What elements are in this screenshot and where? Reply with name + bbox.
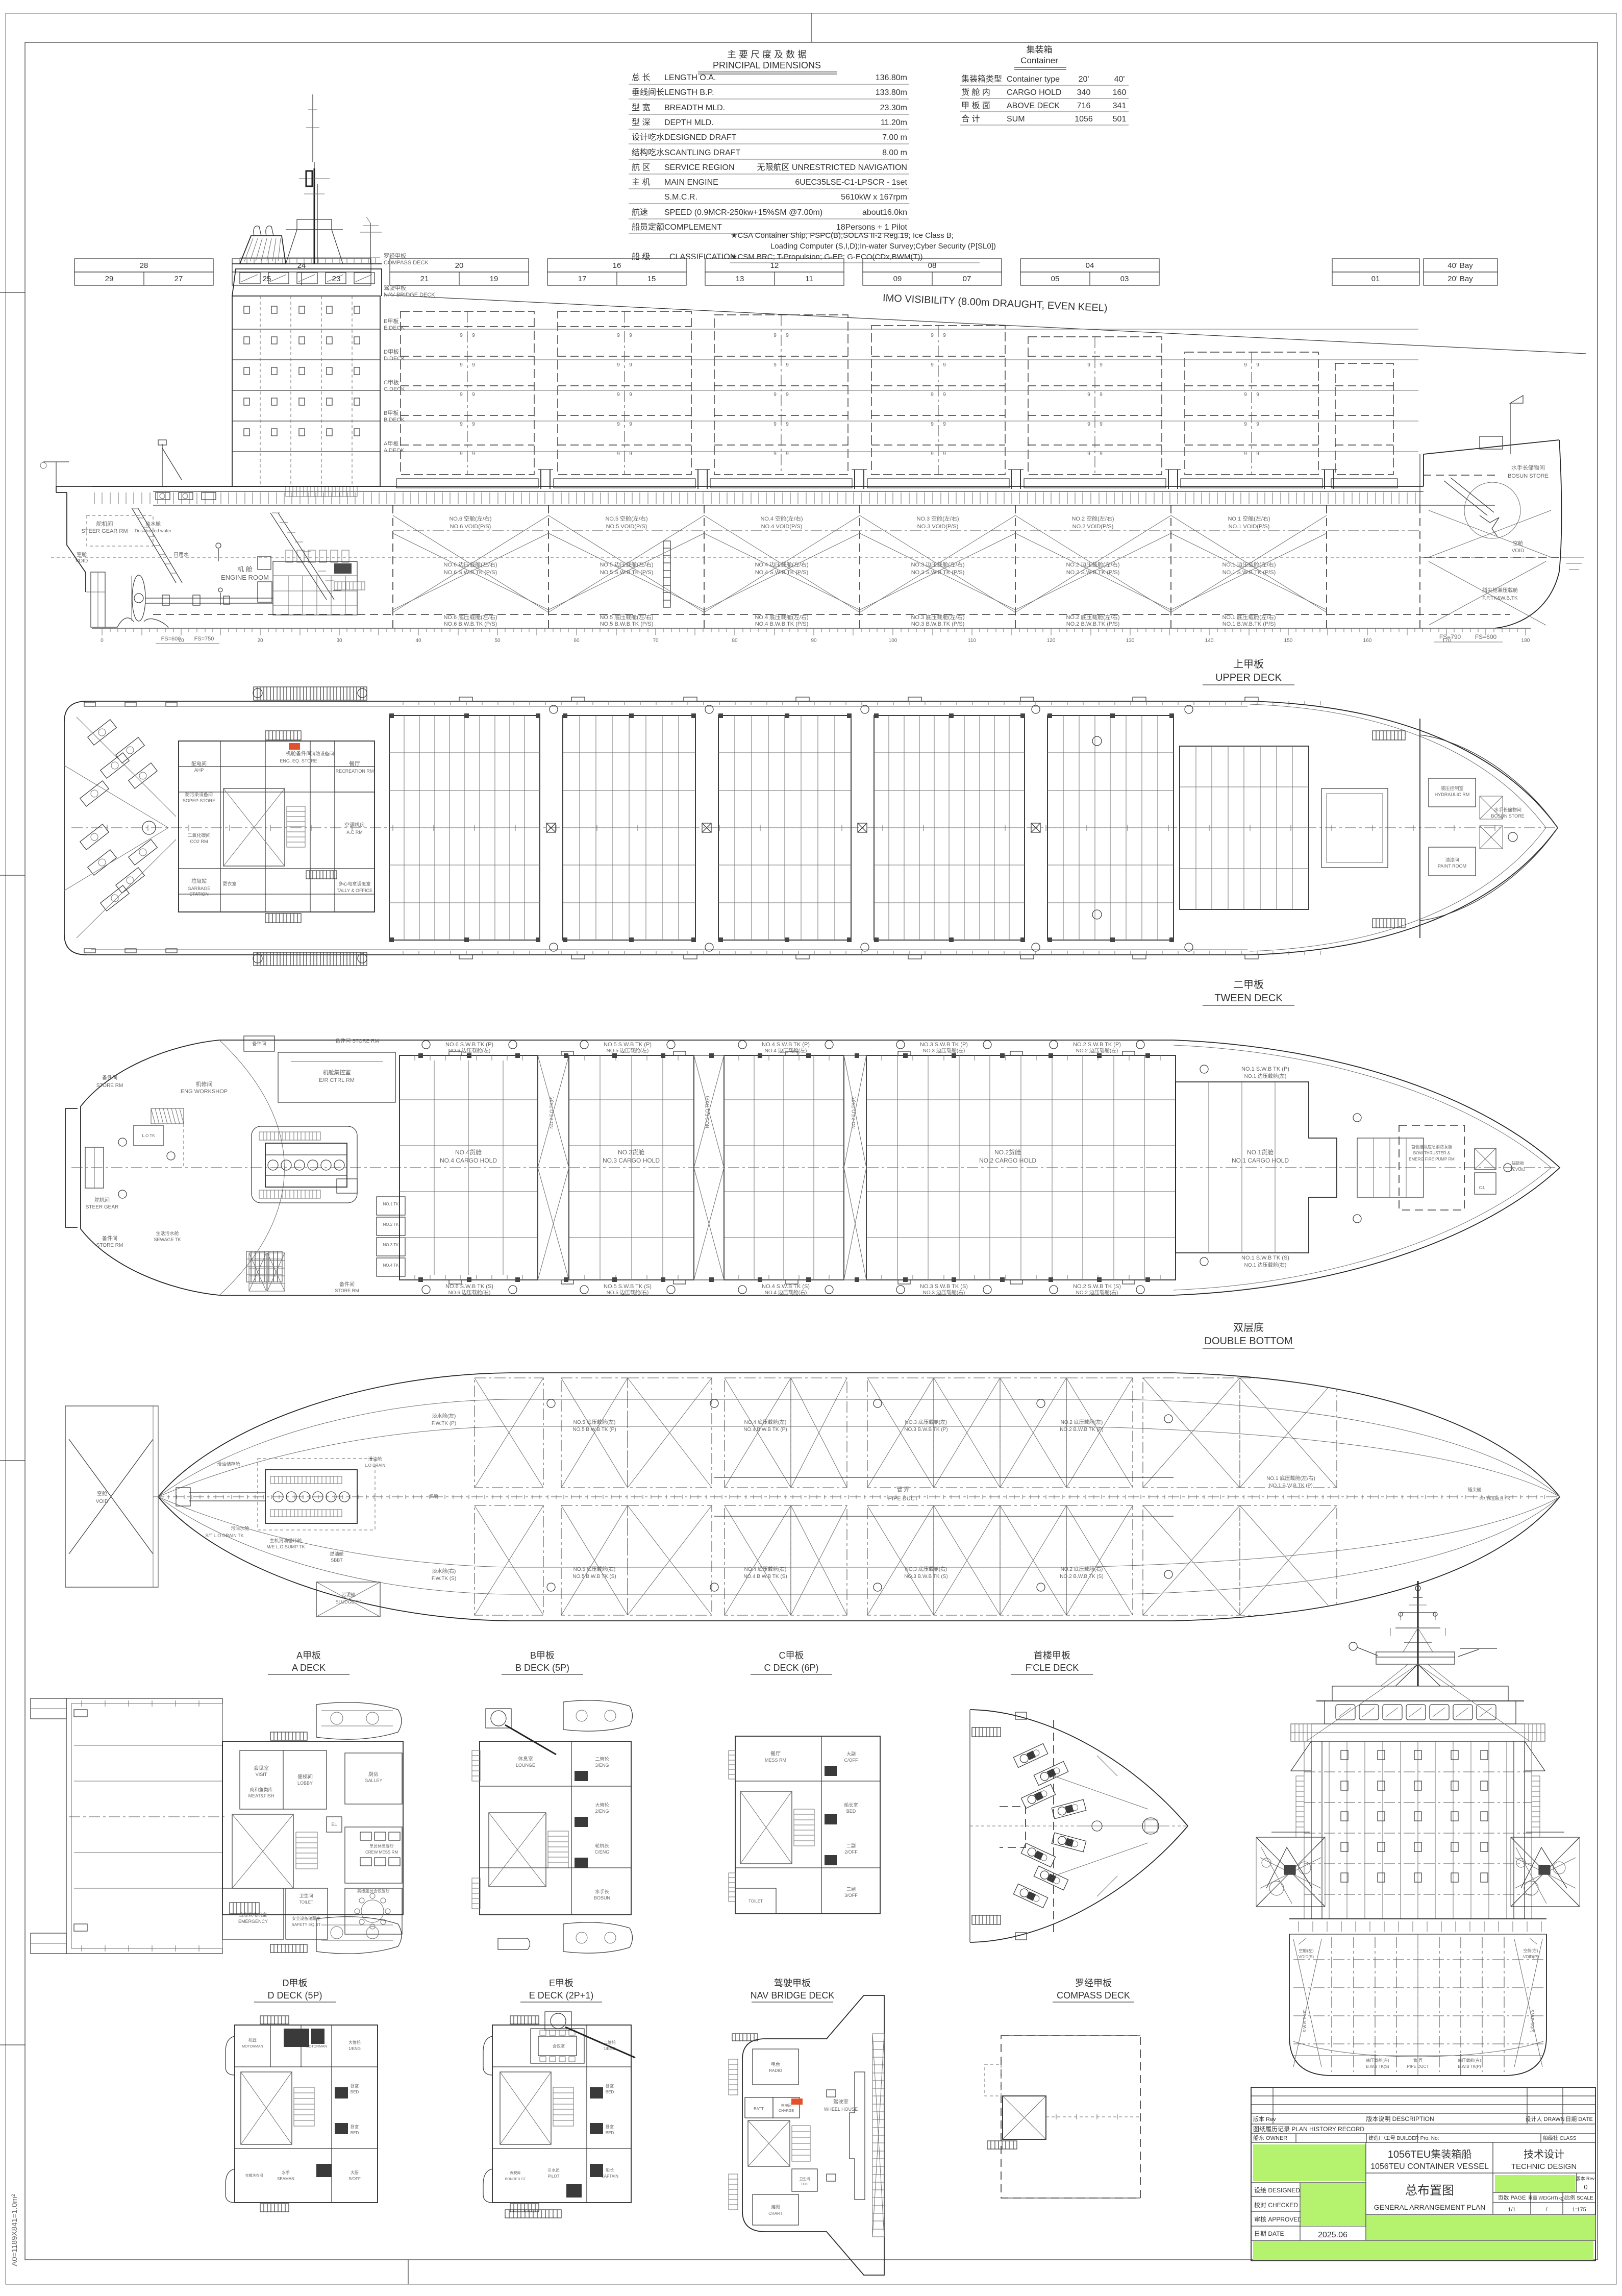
svg-text:04: 04: [1086, 261, 1094, 270]
svg-text:VOID: VOID: [76, 558, 88, 564]
svg-text:GARBAGE: GARBAGE: [188, 886, 211, 891]
svg-text:NO.3 CARGO HOLD: NO.3 CARGO HOLD: [603, 1157, 660, 1164]
svg-text:NO.4 B.W.B TK (P): NO.4 B.W.B TK (P): [743, 1427, 787, 1433]
svg-text:日用水: 日用水: [173, 552, 189, 558]
svg-text:LOBBY: LOBBY: [297, 1781, 313, 1786]
svg-text:大厨: 大厨: [351, 2170, 359, 2175]
svg-text:大管轮: 大管轮: [348, 2040, 361, 2045]
svg-text:C DECK: C DECK: [384, 386, 405, 392]
svg-text:餐厅: 餐厅: [349, 760, 360, 767]
svg-text:SEAMAN: SEAMAN: [277, 2177, 294, 2181]
svg-text:管 弄: 管 弄: [896, 1486, 909, 1493]
svg-text:PAINT ROOM: PAINT ROOM: [1438, 863, 1466, 869]
svg-text:无限航区 UNRESTRICTED NAVIGATION: 无限航区 UNRESTRICTED NAVIGATION: [757, 163, 907, 172]
svg-text:NO.6 S.W.B.TK (P/S): NO.6 S.W.B.TK (P/S): [444, 570, 497, 576]
svg-text:空舱: 空舱: [97, 1490, 107, 1497]
svg-text:首侧推及应急消防泵舱: 首侧推及应急消防泵舱: [1411, 1144, 1452, 1149]
svg-text:9: 9: [1256, 451, 1259, 457]
svg-text:甲 板 面: 甲 板 面: [961, 101, 990, 110]
svg-text:SBBT: SBBT: [331, 1558, 343, 1563]
svg-text:2/ENG: 2/ENG: [595, 1809, 609, 1814]
svg-text:NO.2 S.W.B TK (P): NO.2 S.W.B TK (P): [1073, 1042, 1121, 1048]
svg-text:TALLY & OFFICE: TALLY & OFFICE: [337, 888, 372, 893]
svg-text:UPPER DECK: UPPER DECK: [1215, 672, 1282, 683]
svg-text:图纸履历记录 PLAN HISTORY RECORD: 图纸履历记录 PLAN HISTORY RECORD: [1253, 2126, 1364, 2133]
svg-text:9: 9: [1087, 422, 1090, 427]
svg-text:110: 110: [968, 638, 976, 644]
svg-text:9: 9: [931, 451, 934, 457]
svg-text:VOID: VOID: [1512, 548, 1524, 554]
svg-text:校对 CHECKED: 校对 CHECKED: [1254, 2201, 1298, 2209]
svg-text:船长室: 船长室: [844, 1802, 858, 1808]
svg-text:9: 9: [943, 333, 946, 338]
svg-text:9: 9: [1087, 362, 1090, 368]
svg-text:SUM: SUM: [1007, 115, 1025, 124]
svg-text:120: 120: [1047, 638, 1056, 644]
svg-text:NO.2 B.W.B TK (S): NO.2 B.W.B TK (S): [1060, 1574, 1103, 1579]
svg-text:80: 80: [732, 638, 738, 644]
svg-text:EMERGENCY: EMERGENCY: [238, 1919, 268, 1924]
svg-text:艏尖舱兼压载舱: 艏尖舱兼压载舱: [1482, 587, 1518, 594]
svg-text:空舱: 空舱: [1513, 540, 1523, 547]
svg-text:会见室: 会见室: [254, 1765, 269, 1771]
svg-text:A DECK: A DECK: [384, 448, 405, 454]
svg-text:VOID(S): VOID(S): [1299, 1955, 1314, 1959]
svg-text:PIPE DUCT: PIPE DUCT: [888, 1496, 918, 1502]
svg-text:BOSUN STORE: BOSUN STORE: [1508, 473, 1549, 479]
svg-text:NO.3 B.W.B TK (P): NO.3 B.W.B TK (P): [904, 1427, 947, 1433]
svg-text:更衣室: 更衣室: [222, 881, 236, 886]
svg-text:油漆间: 油漆间: [1445, 857, 1459, 862]
svg-text:船级社 CLASS: 船级社 CLASS: [1543, 2135, 1577, 2141]
svg-text:F.W.TK (P): F.W.TK (P): [432, 1421, 456, 1426]
svg-text:NO.4 底压载舱(左): NO.4 底压载舱(左): [744, 1419, 787, 1425]
svg-text:页数 PAGE: 页数 PAGE: [1498, 2194, 1526, 2201]
svg-text:日期 DATE: 日期 DATE: [1254, 2230, 1284, 2237]
svg-text:S/T L.O DRAIN TK: S/T L.O DRAIN TK: [205, 1533, 243, 1538]
svg-text:NO.3 底压载舱(左): NO.3 底压载舱(左): [905, 1419, 947, 1425]
svg-text:9: 9: [931, 392, 934, 398]
svg-text:9: 9: [1100, 362, 1103, 368]
svg-text:9: 9: [629, 422, 632, 427]
svg-text:9: 9: [472, 362, 475, 368]
svg-text:SOPEP STORE: SOPEP STORE: [183, 798, 215, 803]
svg-text:三副: 三副: [846, 1887, 856, 1892]
svg-text:备件间: 备件间: [339, 1281, 355, 1288]
svg-text:21: 21: [420, 275, 429, 283]
svg-text:多心电意调度室: 多心电意调度室: [338, 881, 370, 886]
svg-text:MEAT&FISH: MEAT&FISH: [248, 1793, 275, 1798]
svg-text:NO.4 CARGO HOLD: NO.4 CARGO HOLD: [440, 1157, 497, 1164]
svg-text:17: 17: [578, 275, 587, 283]
svg-text:GALLEY: GALLEY: [364, 1778, 382, 1783]
svg-text:高级船员会议餐厅: 高级船员会议餐厅: [357, 1888, 390, 1893]
svg-text:VOID: VOID: [96, 1499, 108, 1504]
svg-text:船东 OWNER: 船东 OWNER: [1253, 2134, 1287, 2141]
svg-text:9: 9: [943, 392, 946, 398]
svg-text:NAV BRIDGE DECK: NAV BRIDGE DECK: [751, 1990, 835, 2001]
svg-text:底压载舱(右): 底压载舱(右): [1458, 2058, 1481, 2063]
svg-text:NO.5 底压载舱(左/右): NO.5 底压载舱(左/右): [600, 613, 653, 621]
svg-text:备件间: 备件间: [102, 1235, 117, 1242]
svg-text:40: 40: [415, 638, 421, 644]
svg-text:NO.3 S.W.B TK (S): NO.3 S.W.B TK (S): [920, 1283, 968, 1290]
svg-text:FS=600: FS=600: [161, 636, 181, 642]
svg-text:日期 DATE: 日期 DATE: [1565, 2116, 1593, 2122]
svg-text:C甲板: C甲板: [779, 1650, 804, 1661]
svg-text:E甲板: E甲板: [384, 317, 398, 325]
svg-text:船长: 船长: [606, 2167, 614, 2172]
svg-text:污泥舱: 污泥舱: [341, 1592, 355, 1597]
svg-text:9: 9: [1256, 392, 1259, 398]
svg-text:NO.1 边压载舱(左/右): NO.1 边压载舱(左/右): [1222, 561, 1276, 568]
svg-text:20: 20: [257, 638, 263, 644]
svg-text:底压载舱(左): 底压载舱(左): [1366, 2058, 1389, 2063]
svg-text:NO.5 B.W.B TK (S): NO.5 B.W.B TK (S): [572, 1574, 616, 1579]
svg-text:1:175: 1:175: [1572, 2207, 1586, 2213]
svg-text:NO.6 S.W.B TK (S): NO.6 S.W.B TK (S): [445, 1283, 493, 1290]
svg-text:电台: 电台: [771, 2061, 780, 2067]
svg-text:9: 9: [1100, 422, 1103, 427]
svg-text:C/OFF: C/OFF: [844, 1758, 858, 1763]
svg-text:VOID(P): VOID(P): [1523, 1955, 1539, 1959]
svg-text:S.W.B TK(S): S.W.B TK(S): [1303, 2009, 1307, 2033]
svg-text:型 深: 型 深: [632, 118, 650, 127]
svg-text:NO.6 边压载舱(左): NO.6 边压载舱(左): [448, 1047, 491, 1054]
svg-text:NO.4 空舱(左/右): NO.4 空舱(左/右): [760, 515, 803, 522]
svg-text:NO.2 空舱(左/右): NO.2 空舱(左/右): [1071, 515, 1114, 522]
svg-text:2025.06: 2025.06: [1318, 2231, 1347, 2239]
svg-text:9: 9: [460, 451, 463, 457]
svg-text:12: 12: [770, 261, 779, 270]
svg-text:会议室: 会议室: [553, 2043, 565, 2048]
svg-text:NO.4 S.W.B TK (P): NO.4 S.W.B TK (P): [762, 1042, 810, 1048]
svg-text:主 要 尺 度 及 数 据: 主 要 尺 度 及 数 据: [727, 50, 807, 60]
svg-text:CAPTAIN: CAPTAIN: [601, 2174, 618, 2179]
svg-text:0: 0: [1584, 2183, 1587, 2191]
svg-text:HYDRAULIC RM: HYDRAULIC RM: [1435, 792, 1470, 797]
svg-text:FS=790: FS=790: [1439, 633, 1461, 640]
svg-text:9: 9: [943, 422, 946, 427]
svg-text:180: 180: [1521, 638, 1530, 644]
svg-text:罗经甲板: 罗经甲板: [384, 252, 406, 259]
svg-text:6UEC35LSE-C1-LPSCR - 1set: 6UEC35LSE-C1-LPSCR - 1set: [795, 178, 907, 187]
svg-text:9: 9: [617, 422, 620, 427]
svg-text:RECREATION RM: RECREATION RM: [336, 769, 374, 774]
svg-text:29: 29: [105, 275, 114, 283]
svg-text:驾驶甲板: 驾驶甲板: [384, 284, 406, 291]
svg-text:淡水舱(左): 淡水舱(左): [432, 1413, 456, 1419]
svg-text:8.00 m: 8.00 m: [882, 149, 907, 157]
svg-text:垂线间长: 垂线间长: [632, 88, 664, 97]
svg-text:D DECK (5P): D DECK (5P): [267, 1990, 322, 2001]
svg-text:TOILET: TOILET: [748, 1899, 763, 1904]
svg-text:501: 501: [1113, 115, 1127, 124]
svg-text:30: 30: [336, 638, 342, 644]
svg-text:C DECK (6P): C DECK (6P): [764, 1663, 818, 1673]
svg-text:NO.5 底压载舱(右): NO.5 底压载舱(右): [573, 1566, 616, 1572]
svg-text:NO.4 TK: NO.4 TK: [383, 1263, 400, 1268]
svg-text:NO.3 S.W.B TK (P): NO.3 S.W.B TK (P): [920, 1042, 968, 1048]
svg-text:防污染设备间: 防污染设备间: [185, 792, 213, 797]
svg-text:LENGTH O.A.: LENGTH O.A.: [664, 73, 716, 82]
svg-text:双层底: 双层底: [1233, 1322, 1264, 1334]
svg-text:STEER GEAR: STEER GEAR: [86, 1204, 118, 1210]
svg-text:9: 9: [629, 362, 632, 368]
svg-text:BOSUN STORE: BOSUN STORE: [1491, 813, 1524, 819]
svg-text:空调机房: 空调机房: [344, 822, 365, 828]
svg-text:F'CLE DECK: F'CLE DECK: [1026, 1663, 1079, 1673]
svg-text:NO.5 B.W.B TK (P): NO.5 B.W.B TK (P): [572, 1427, 616, 1433]
svg-text:9: 9: [617, 451, 620, 457]
svg-text:NO.5 边压载舱(左/右): NO.5 边压载舱(左/右): [600, 561, 653, 568]
svg-text:9: 9: [773, 333, 777, 338]
svg-text:NO.2 TK: NO.2 TK: [383, 1222, 400, 1227]
svg-text:主机滑油循环舱: 主机滑油循环舱: [269, 1538, 302, 1543]
svg-text:FS=600: FS=600: [1475, 633, 1497, 640]
svg-text:CREW MESS RM: CREW MESS RM: [365, 1850, 398, 1855]
svg-text:水手长储物间: 水手长储物间: [1511, 464, 1545, 471]
svg-text:A甲板: A甲板: [384, 440, 398, 447]
svg-text:EMERG FIRE PUMP RM: EMERG FIRE PUMP RM: [1409, 1157, 1455, 1162]
svg-text:NO.2 底压载舱(左): NO.2 底压载舱(左): [1061, 1419, 1103, 1425]
svg-text:BONDED ST: BONDED ST: [505, 2178, 527, 2181]
svg-text:主 机: 主 机: [632, 178, 650, 187]
svg-text:TECHNIC DESIGN: TECHNIC DESIGN: [1511, 2162, 1577, 2171]
svg-text:液压控制室: 液压控制室: [1440, 785, 1463, 791]
svg-text:9: 9: [617, 333, 620, 338]
svg-text:18Persons + 1 Pilot: 18Persons + 1 Pilot: [836, 223, 908, 232]
svg-text:NO.2 底压载舱(左/右): NO.2 底压载舱(左/右): [1066, 613, 1119, 621]
svg-text:Desalinated water: Desalinated water: [135, 528, 171, 533]
svg-text:NO.6 VOID(P/S): NO.6 VOID(P/S): [450, 524, 491, 530]
svg-text:9: 9: [943, 362, 946, 368]
svg-text:B.W.B TK(P): B.W.B TK(P): [1458, 2064, 1481, 2069]
svg-text:5610kW x 167rpm: 5610kW x 167rpm: [841, 193, 907, 202]
svg-text:BED: BED: [351, 2131, 359, 2135]
svg-text:Loading Computer (S,I,D);In-wa: Loading Computer (S,I,D);In-water Survey…: [770, 242, 996, 251]
svg-text:罗经甲板: 罗经甲板: [1075, 1978, 1112, 1988]
svg-text:A DECK: A DECK: [292, 1663, 326, 1673]
svg-text:A甲板: A甲板: [296, 1650, 321, 1661]
svg-text:08: 08: [928, 261, 937, 270]
svg-text:Container: Container: [1020, 56, 1058, 65]
svg-text:S/OFF: S/OFF: [348, 2177, 361, 2181]
svg-text:E甲板: E甲板: [549, 1978, 573, 1988]
svg-text:CLASSIFICATION: CLASSIFICATION: [669, 253, 736, 261]
svg-text:E DECK (2P+1): E DECK (2P+1): [529, 1990, 594, 2001]
svg-text:舵机间: 舵机间: [96, 520, 113, 527]
svg-text:二副: 二副: [846, 1843, 856, 1848]
svg-text:STATION: STATION: [189, 892, 209, 897]
svg-text:C.L: C.L: [1479, 1186, 1486, 1190]
svg-text:NO.2 边压载舱(左/右): NO.2 边压载舱(左/右): [1066, 561, 1119, 568]
svg-text:CHARGE: CHARGE: [779, 2109, 794, 2113]
svg-text:Container type: Container type: [1007, 75, 1060, 84]
svg-text:肉和鱼类库: 肉和鱼类库: [249, 1787, 272, 1792]
svg-text:配电间: 配电间: [191, 760, 207, 767]
svg-text:9: 9: [786, 362, 789, 368]
svg-text:01: 01: [1371, 275, 1380, 283]
svg-text:about16.0kn: about16.0kn: [862, 208, 907, 217]
svg-text:28: 28: [140, 261, 148, 270]
svg-text:锚链舱: 锚链舱: [1512, 1161, 1524, 1166]
svg-text:9: 9: [1244, 451, 1247, 457]
svg-text:NO.3 VOID(P/S): NO.3 VOID(P/S): [917, 524, 959, 530]
svg-text:9: 9: [773, 422, 777, 427]
svg-text:20': 20': [1079, 75, 1089, 84]
svg-text:NO.3货舱: NO.3货舱: [618, 1148, 644, 1156]
svg-text:NO.1 底压载舱(左/右): NO.1 底压载舱(左/右): [1266, 1475, 1315, 1482]
svg-text:引水员: 引水员: [547, 2167, 560, 2172]
svg-text:舵机间: 舵机间: [94, 1197, 110, 1203]
svg-text:CO2 RM: CO2 RM: [190, 839, 208, 844]
svg-text:版本 Rev:: 版本 Rev:: [1576, 2176, 1595, 2181]
svg-text:餐厅: 餐厅: [770, 1750, 781, 1757]
svg-text:驾驶甲板: 驾驶甲板: [774, 1978, 811, 1988]
svg-text:CHART: CHART: [768, 2211, 783, 2216]
svg-text:卫生间: 卫生间: [800, 2177, 810, 2181]
svg-text:NO.4 S.W.B.TK (P/S): NO.4 S.W.B.TK (P/S): [755, 570, 809, 576]
svg-text:05: 05: [1051, 275, 1060, 283]
svg-text:NO.2 边压载舱(左): NO.2 边压载舱(左): [1076, 1047, 1118, 1054]
svg-text:厨房: 厨房: [368, 1771, 379, 1777]
svg-text:60: 60: [573, 638, 580, 644]
svg-text:MESS RM: MESS RM: [765, 1758, 786, 1763]
svg-text:备件间: 备件间: [252, 1041, 266, 1046]
svg-text:NO.6 S.W.B TK (P): NO.6 S.W.B TK (P): [445, 1042, 493, 1048]
svg-text:9: 9: [773, 392, 777, 398]
svg-text:衣帽洗衣间: 衣帽洗衣间: [245, 2173, 263, 2178]
svg-text:NO.6 边压载舱(左/右): NO.6 边压载舱(左/右): [443, 561, 497, 568]
svg-text:合 计: 合 计: [961, 114, 980, 124]
svg-text:NO.6 B.W.B.TK (P/S): NO.6 B.W.B.TK (P/S): [444, 621, 497, 627]
svg-text:BREADTH MLD.: BREADTH MLD.: [664, 104, 725, 112]
svg-text:9: 9: [629, 451, 632, 457]
svg-text:DOUBLE BOTTOM: DOUBLE BOTTOM: [1205, 1336, 1293, 1347]
svg-text:C甲板: C甲板: [384, 379, 399, 386]
svg-text:NO.5 底压载舱(左): NO.5 底压载舱(左): [573, 1419, 616, 1425]
svg-text:S.W.B TK(P): S.W.B TK(P): [1530, 2009, 1534, 2033]
svg-text:SEWAGE TK: SEWAGE TK: [154, 1237, 181, 1242]
svg-text:B甲板: B甲板: [384, 409, 398, 416]
svg-text:COMPASS DECK: COMPASS DECK: [1057, 1990, 1130, 2001]
svg-text:NO.1 底压载舱(左/右): NO.1 底压载舱(左/右): [1222, 613, 1276, 621]
svg-text:ENG. EQ. STORE: ENG. EQ. STORE: [280, 758, 317, 763]
svg-text:A.C RM: A.C RM: [346, 830, 363, 835]
svg-text:NO.1 边压载舱(左): NO.1 边压载舱(左): [1244, 1073, 1287, 1079]
svg-text:SPEED (0.9MCR-250kw+15%SM @7.: SPEED (0.9MCR-250kw+15%SM @7.00m): [664, 208, 822, 217]
svg-text:NO.3 边压载舱(左/右): NO.3 边压载舱(左/右): [911, 561, 964, 568]
svg-text:9: 9: [1087, 451, 1090, 457]
svg-text:9: 9: [943, 451, 946, 457]
svg-text:PRINCIPAL DIMENSIONS: PRINCIPAL DIMENSIONS: [713, 60, 821, 70]
svg-text:设绘 DESIGNED: 设绘 DESIGNED: [1254, 2186, 1300, 2194]
svg-text:3/OFF: 3/OFF: [844, 1893, 858, 1898]
svg-text:航 区: 航 区: [632, 163, 650, 172]
svg-text:NO.3 底压载舱(左/右): NO.3 底压载舱(左/右): [911, 613, 964, 621]
svg-text:NO.6 空舱(左/右): NO.6 空舱(左/右): [449, 515, 491, 522]
svg-text:E/R CTRL RM: E/R CTRL RM: [319, 1077, 355, 1083]
svg-text:结构吃水: 结构吃水: [632, 148, 664, 157]
svg-text:20: 20: [455, 261, 464, 270]
svg-text:二氧化碳间: 二氧化碳间: [187, 832, 210, 838]
svg-text:9: 9: [460, 422, 463, 427]
svg-text:VISIT: VISIT: [256, 1772, 267, 1777]
svg-text:9: 9: [1087, 392, 1090, 398]
svg-text:FP.TK&W.B.TK: FP.TK&W.B.TK: [1480, 1496, 1511, 1501]
svg-text:NO.2 F.O TK(P): NO.2 F.O TK(P): [851, 1096, 856, 1128]
svg-text:9: 9: [617, 362, 620, 368]
svg-text:D DECK: D DECK: [384, 356, 405, 362]
svg-text:BATT: BATT: [754, 2107, 764, 2111]
svg-text:便梯间: 便梯间: [297, 1773, 313, 1780]
svg-text:大管轮: 大管轮: [595, 1802, 609, 1808]
svg-text:F.P.TK&W.B.TK: F.P.TK&W.B.TK: [1482, 596, 1518, 601]
svg-text:NO.2 S.W.B TK (S): NO.2 S.W.B TK (S): [1073, 1283, 1121, 1290]
svg-text:船 级: 船 级: [632, 252, 650, 261]
svg-text:COMPASS DECK: COMPASS DECK: [384, 260, 429, 266]
svg-text:轮机长: 轮机长: [595, 1843, 609, 1848]
svg-text:9: 9: [460, 362, 463, 368]
svg-text:9: 9: [786, 392, 789, 398]
svg-text:M/E L.O SUMP TK: M/E L.O SUMP TK: [266, 1544, 305, 1549]
svg-text:9: 9: [472, 422, 475, 427]
svg-text:NO.4货舱: NO.4货舱: [455, 1148, 482, 1156]
svg-text:集装箱类型: 集装箱类型: [961, 75, 1002, 84]
svg-text:NO.1 空舱(左/右): NO.1 空舱(左/右): [1228, 515, 1270, 522]
svg-text:大副: 大副: [846, 1751, 856, 1757]
svg-text:NO.1 边压载舱(右): NO.1 边压载舱(右): [1244, 1262, 1287, 1268]
svg-text:NO.4 S.W.B TK (S): NO.4 S.W.B TK (S): [762, 1283, 810, 1290]
svg-text:单员休息餐厅: 单员休息餐厅: [369, 1843, 394, 1848]
svg-text:133.80m: 133.80m: [876, 88, 907, 97]
svg-text:NO.2 B.W.B.TK (P/S): NO.2 B.W.B.TK (P/S): [1066, 621, 1120, 627]
svg-text:NO.4 底压载舱(左/右): NO.4 底压载舱(左/右): [755, 613, 808, 621]
svg-text:100: 100: [889, 638, 897, 644]
svg-text:BED: BED: [606, 2131, 614, 2135]
svg-text:卧室: 卧室: [351, 2083, 359, 2088]
svg-text:卧室: 卧室: [606, 2083, 614, 2088]
svg-text:13: 13: [736, 275, 744, 283]
svg-text:716: 716: [1077, 102, 1091, 110]
svg-text:C/ENG: C/ENG: [595, 1849, 610, 1855]
svg-text:NO.1 CARGO HOLD: NO.1 CARGO HOLD: [1232, 1157, 1289, 1164]
svg-text:9: 9: [460, 333, 463, 338]
svg-text:重量 WEIGHT(kg): 重量 WEIGHT(kg): [1528, 2195, 1565, 2201]
svg-text:AHP: AHP: [194, 768, 204, 773]
svg-text:NO.5 S.W.B TK (S): NO.5 S.W.B TK (S): [604, 1283, 652, 1290]
svg-text:NO.1 B.W.B TK (P): NO.1 B.W.B TK (P): [1269, 1483, 1312, 1489]
svg-text:机 舱: 机 舱: [237, 565, 253, 573]
svg-text:空舱(右): 空舱(右): [1523, 1948, 1538, 1953]
svg-text:9: 9: [1244, 392, 1247, 398]
svg-text:机舱: 机舱: [429, 1493, 438, 1499]
svg-text:WHEEL HOUSE: WHEEL HOUSE: [824, 2107, 858, 2112]
svg-text:25: 25: [263, 275, 271, 283]
svg-text:9: 9: [1244, 362, 1247, 368]
svg-text:07: 07: [963, 275, 971, 283]
svg-text:艏尖舱: 艏尖舱: [1467, 1487, 1481, 1492]
svg-text:340: 340: [1077, 88, 1091, 97]
svg-text:9: 9: [1256, 362, 1259, 368]
svg-text:NAV BRIDGE DECK: NAV BRIDGE DECK: [384, 292, 435, 298]
svg-text:卧室: 卧室: [351, 2124, 359, 2129]
svg-text:9: 9: [472, 392, 475, 398]
svg-text:9: 9: [1256, 422, 1259, 427]
svg-text:应急发电机室: 应急发电机室: [239, 1912, 267, 1917]
svg-text:驾驶室: 驾驶室: [833, 2099, 849, 2105]
